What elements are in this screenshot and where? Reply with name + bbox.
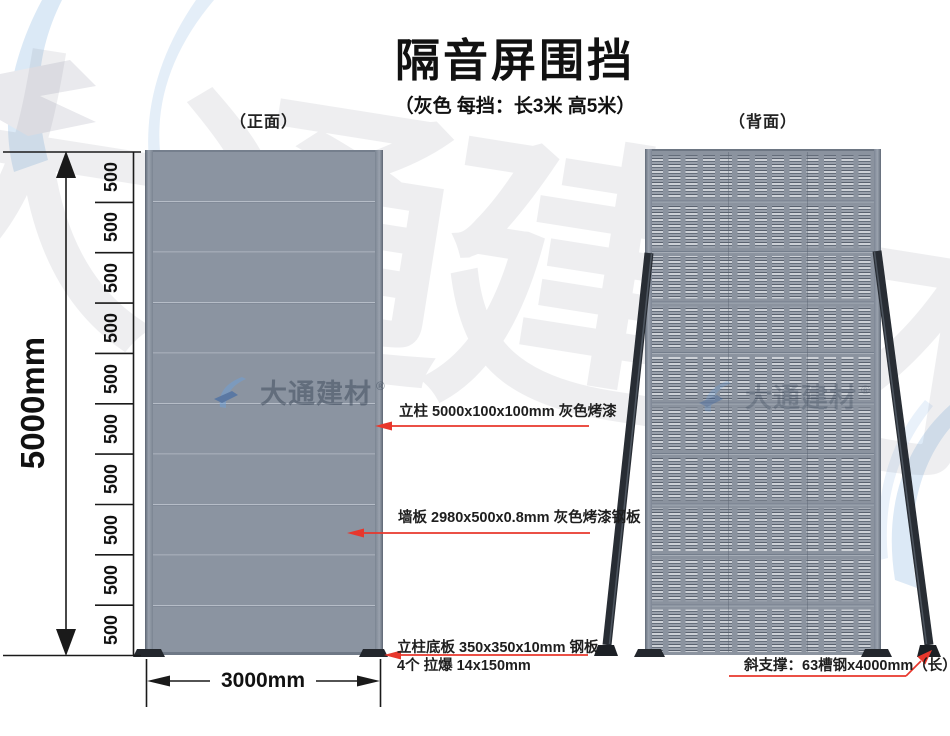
segment-dimension: 500 bbox=[89, 508, 133, 552]
brand-logo-icon bbox=[212, 377, 256, 411]
callout-diagonal-brace: 斜支撑：63槽钢x4000mm（长） bbox=[744, 658, 950, 675]
total-width-dimension: 3000mm bbox=[210, 668, 316, 693]
front-view-label: （正面） bbox=[194, 108, 334, 132]
page-subtitle: （灰色 每挡：长3米 高5米） bbox=[300, 91, 730, 118]
diagram-canvas: 大通建材 大通建材 ® 大通建材 ® bbox=[0, 0, 950, 736]
page-title: 隔音屏围挡 bbox=[300, 36, 730, 86]
brand-watermark-back: 大通建材 ® bbox=[697, 381, 870, 415]
back-panel-right-post bbox=[874, 149, 881, 655]
segment-dimension: 500 bbox=[89, 457, 133, 501]
front-panel-left-post bbox=[145, 150, 153, 655]
callout-wall-panel: 墙板 2980x500x0.8mm 灰色烤漆钢板 bbox=[398, 510, 641, 527]
callout-anchor-bolts: 4个 拉爆 14x150mm bbox=[397, 658, 531, 675]
back-panel-left-post bbox=[645, 149, 652, 655]
segment-dimension: 500 bbox=[89, 558, 133, 602]
back-view-label: （背面） bbox=[693, 108, 833, 132]
brand-logo-icon bbox=[697, 381, 741, 415]
segment-dimension: 500 bbox=[89, 357, 133, 401]
brand-watermark-text: 大通建材 bbox=[745, 385, 857, 412]
segment-dimension: 500 bbox=[89, 256, 133, 300]
total-height-dimension: 5000mm bbox=[15, 333, 51, 473]
segment-dimension: 500 bbox=[89, 306, 133, 350]
segment-dimension: 500 bbox=[89, 407, 133, 451]
brand-registered-mark: ® bbox=[861, 383, 870, 397]
callout-post: 立柱 5000x100x100mm 灰色烤漆 bbox=[399, 404, 617, 421]
segment-dimension: 500 bbox=[89, 205, 133, 249]
brand-watermark-text: 大通建材 bbox=[260, 381, 372, 408]
segment-dimension: 500 bbox=[89, 155, 133, 199]
brand-registered-mark: ® bbox=[376, 379, 385, 393]
brand-watermark-front: 大通建材 ® bbox=[212, 377, 385, 411]
segment-dimension: 500 bbox=[89, 608, 133, 652]
callout-base-plate: 立柱底板 350x350x10mm 钢板 bbox=[397, 640, 598, 657]
